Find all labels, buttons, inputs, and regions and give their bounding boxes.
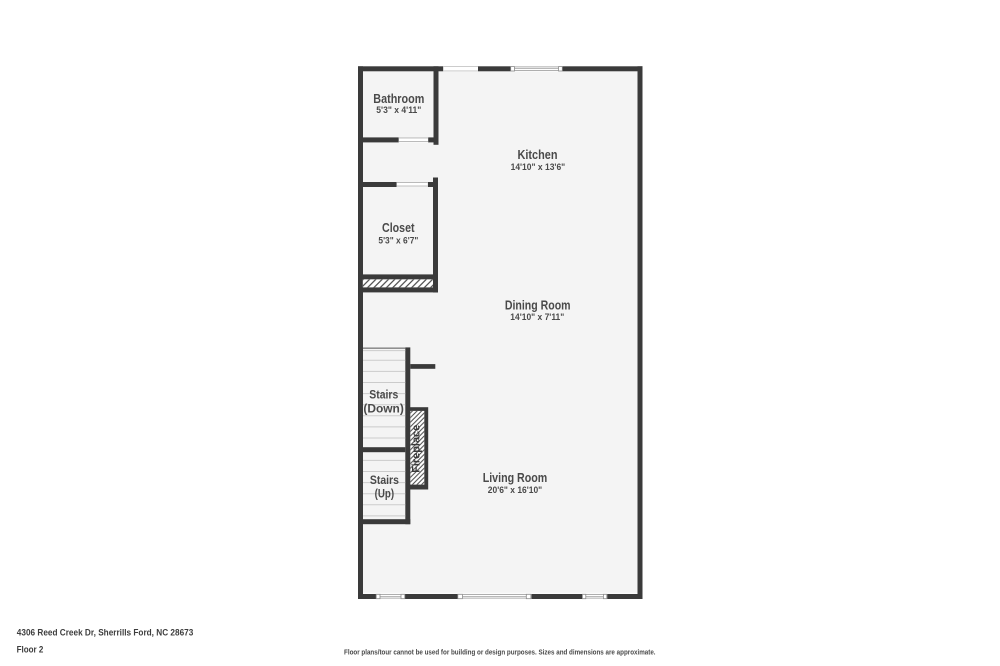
svg-text:5'3" x 6'7": 5'3" x 6'7" [378, 236, 418, 247]
svg-text:Stairs: Stairs [369, 388, 398, 402]
svg-text:(Down): (Down) [363, 401, 404, 415]
svg-text:14'10" x 13'6": 14'10" x 13'6" [511, 162, 566, 173]
svg-text:Closet: Closet [382, 221, 415, 235]
svg-text:Fireplace: Fireplace [411, 425, 423, 473]
svg-text:4306 Reed Creek Dr, Sherrills: 4306 Reed Creek Dr, Sherrills Ford, NC 2… [17, 627, 194, 638]
svg-text:20'6" x 16'10": 20'6" x 16'10" [488, 485, 542, 496]
svg-text:Floor 2: Floor 2 [17, 644, 44, 655]
svg-text:Kitchen: Kitchen [518, 148, 558, 162]
svg-text:Dining Room: Dining Room [505, 298, 571, 312]
svg-text:5'3" x 4'11": 5'3" x 4'11" [376, 105, 421, 116]
svg-text:Stairs: Stairs [370, 473, 399, 487]
svg-text:Living Room: Living Room [483, 471, 548, 485]
svg-text:(Up): (Up) [375, 486, 395, 500]
svg-text:14'10" x 7'11": 14'10" x 7'11" [510, 312, 564, 323]
svg-text:Bathroom: Bathroom [373, 92, 424, 106]
svg-text:Floor plans/tour cannot be use: Floor plans/tour cannot be used for buil… [344, 648, 656, 657]
